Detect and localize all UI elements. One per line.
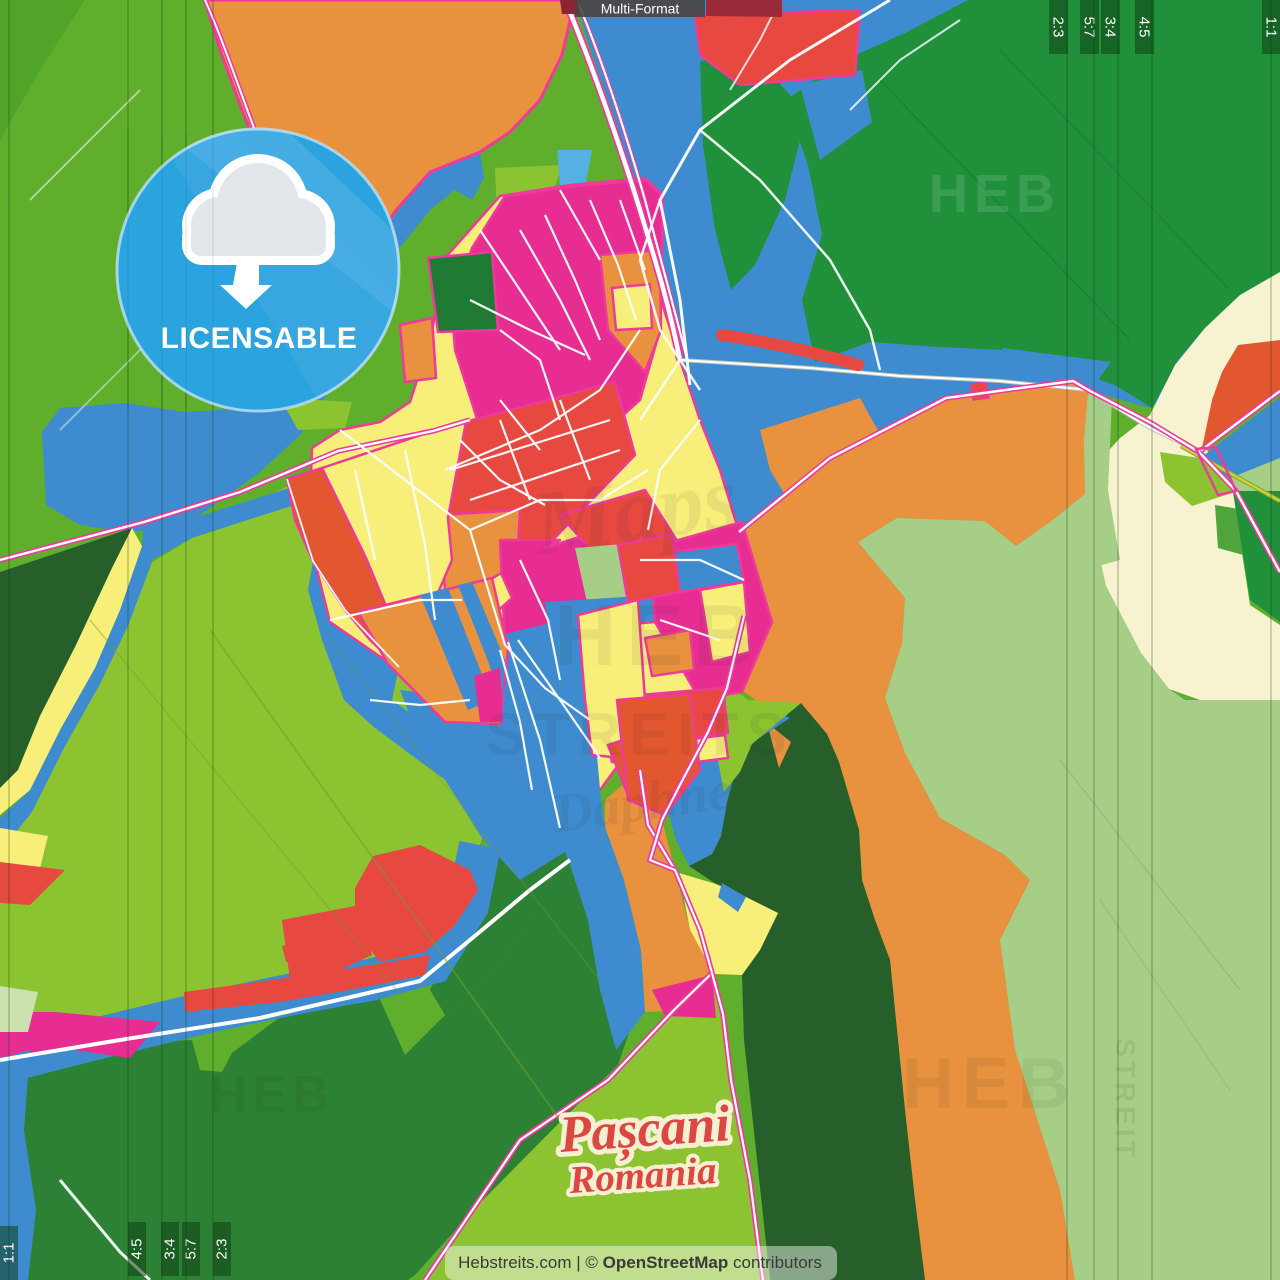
svg-text:HEB: HEB bbox=[554, 588, 766, 684]
svg-text:HEB: HEB bbox=[902, 1044, 1078, 1124]
svg-text:3:4: 3:4 bbox=[1102, 17, 1119, 38]
svg-text:4:5: 4:5 bbox=[1136, 17, 1153, 38]
svg-text:Multi-Format: Multi-Format bbox=[601, 1, 680, 17]
svg-text:3:4: 3:4 bbox=[162, 1239, 179, 1260]
svg-text:5:7: 5:7 bbox=[1081, 17, 1098, 38]
svg-text:2:3: 2:3 bbox=[214, 1239, 231, 1260]
svg-text:Hebstreits.com | © OpenStreetM: Hebstreits.com | © OpenStreetMap contrib… bbox=[458, 1253, 822, 1272]
svg-text:4:5: 4:5 bbox=[129, 1239, 146, 1260]
svg-text:STREIT: STREIT bbox=[1110, 1038, 1141, 1162]
svg-text:LICENSABLE: LICENSABLE bbox=[161, 322, 358, 355]
svg-text:STREITS: STREITS bbox=[485, 701, 794, 768]
svg-text:5:7: 5:7 bbox=[183, 1239, 200, 1260]
svg-text:2:3: 2:3 bbox=[1050, 17, 1067, 38]
svg-text:HEB: HEB bbox=[929, 164, 1061, 224]
svg-text:HEB: HEB bbox=[210, 1066, 335, 1124]
